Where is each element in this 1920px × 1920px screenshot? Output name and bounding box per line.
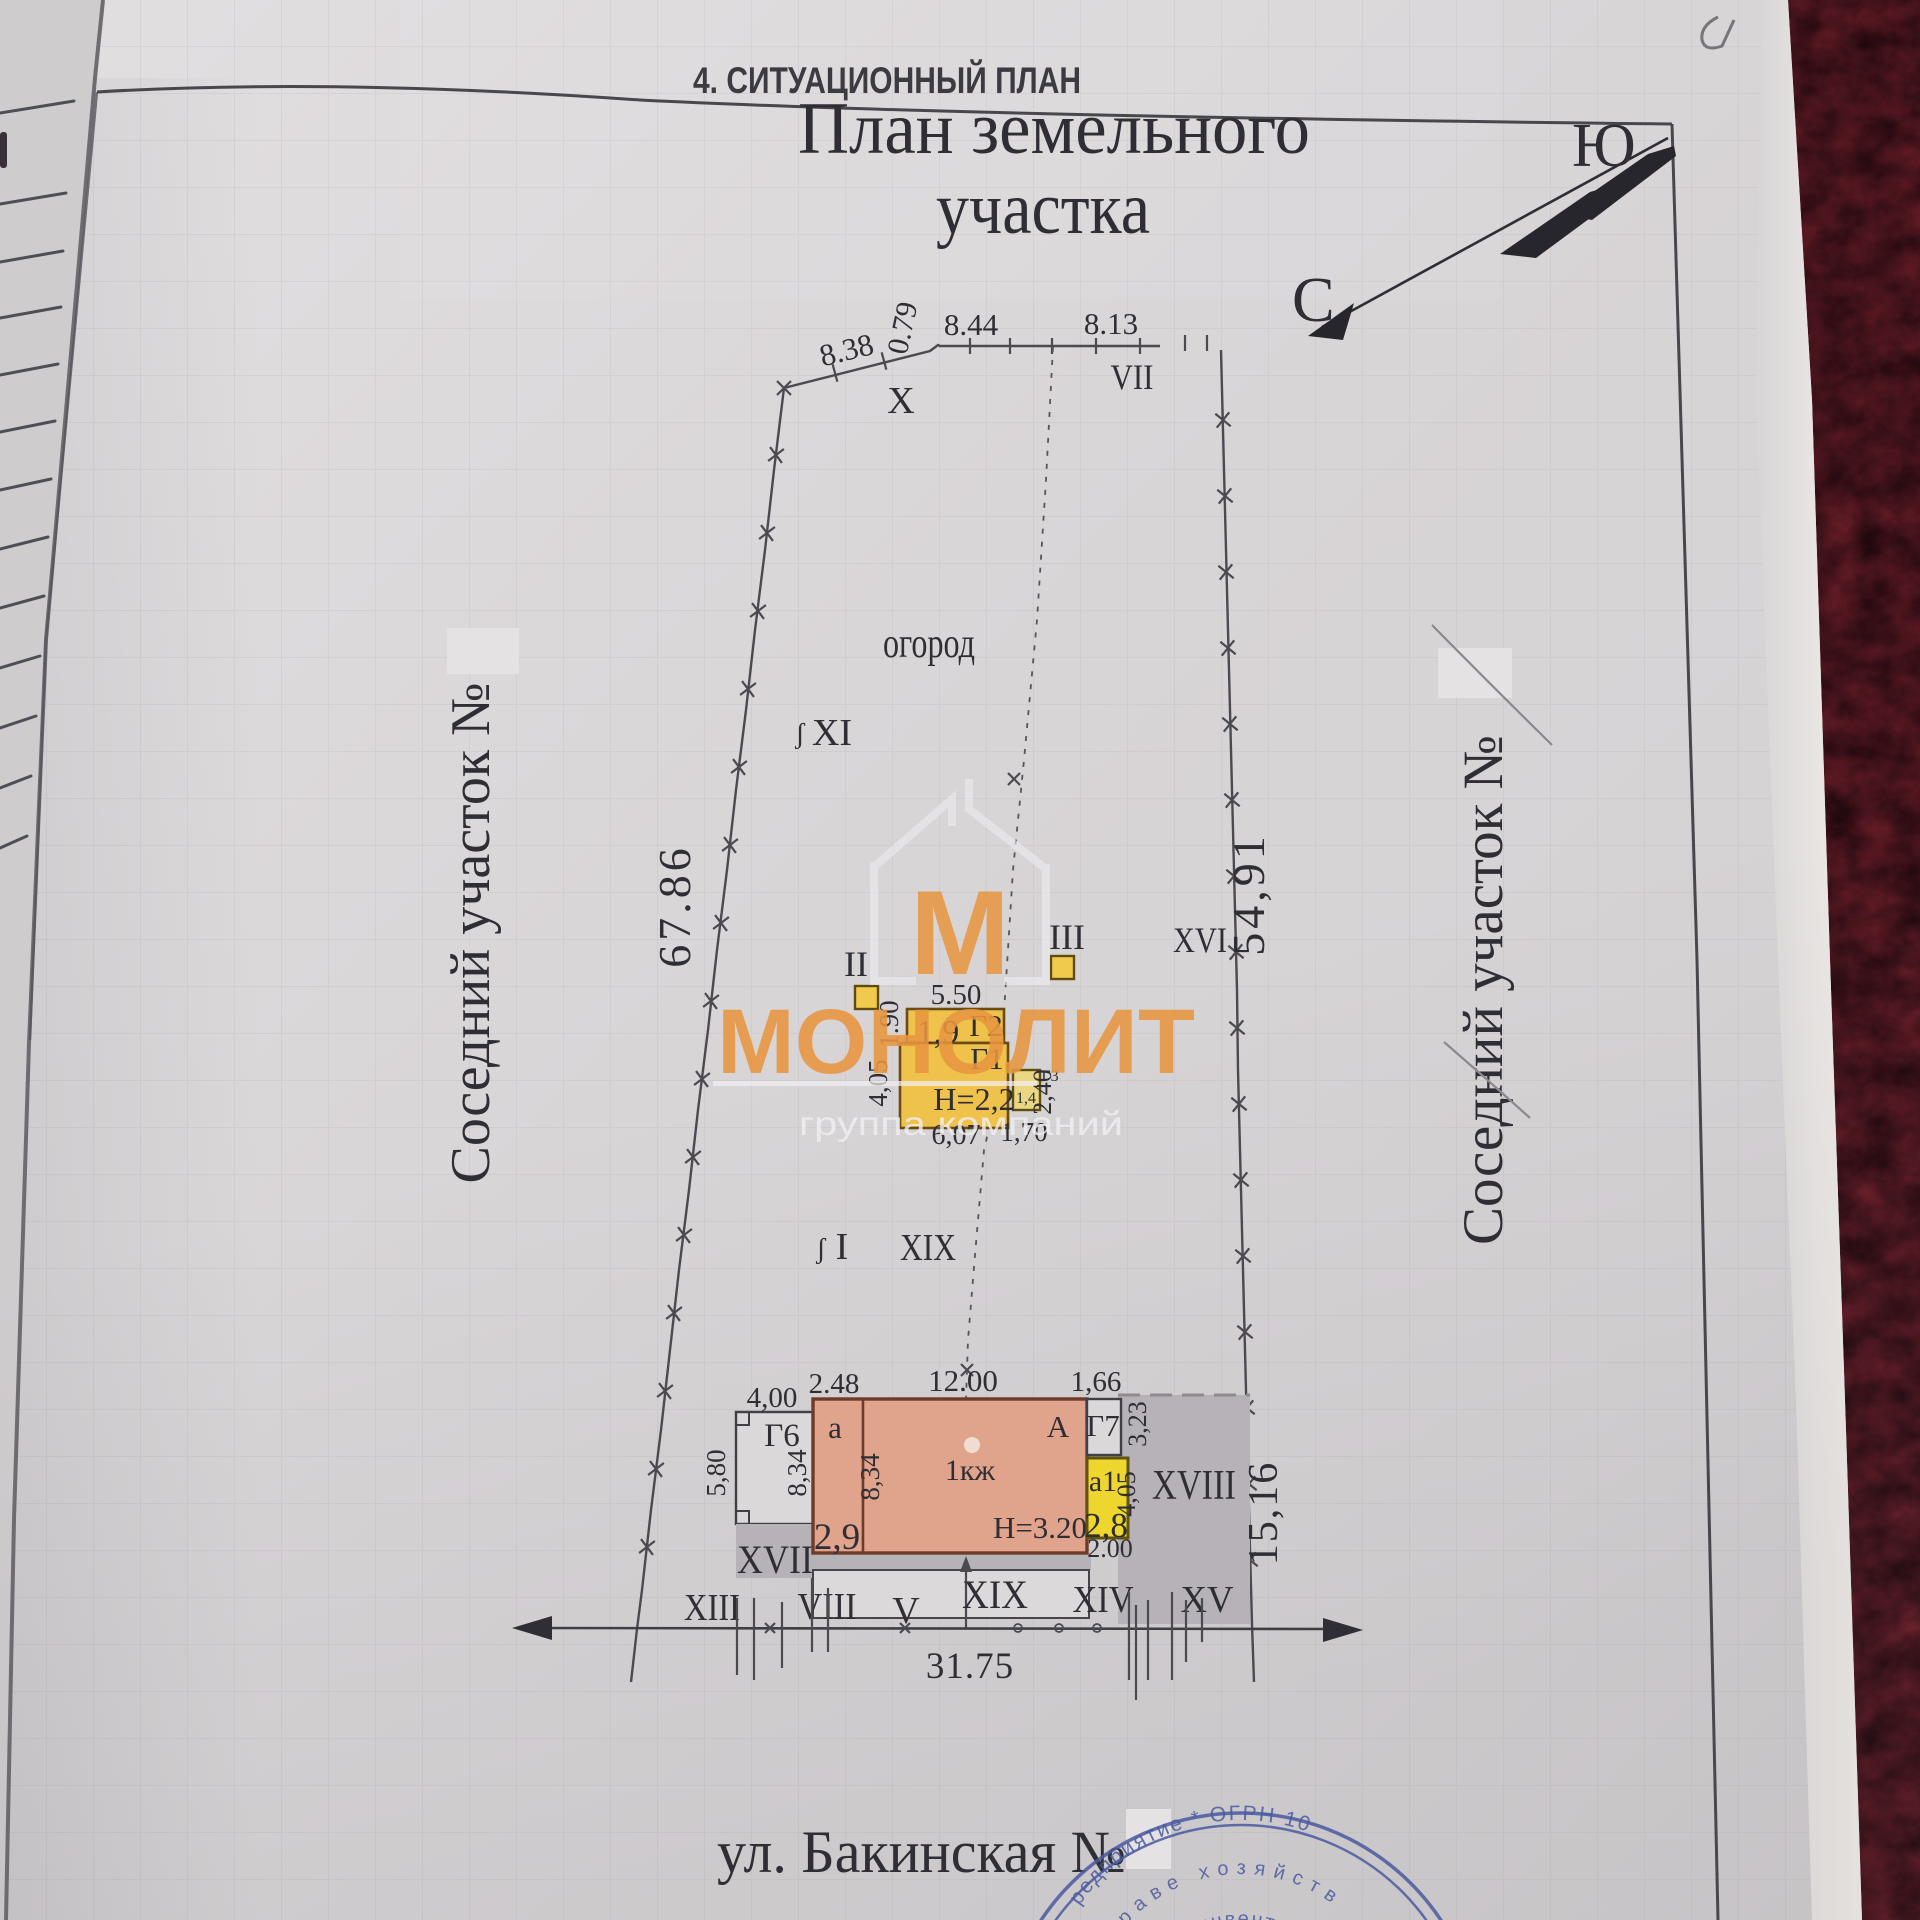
svg-text:1кж: 1кж	[945, 1454, 996, 1487]
svg-text:А: А	[1047, 1409, 1070, 1444]
svg-text:XIV: XIV	[1073, 1579, 1134, 1621]
svg-text:XIII: XIII	[684, 1587, 740, 1629]
svg-text:8,34: 8,34	[782, 1449, 812, 1497]
svg-text:План земельного: План земельного	[798, 88, 1310, 170]
svg-text:XIX: XIX	[962, 1572, 1028, 1617]
svg-text:15,16: 15,16	[1241, 1461, 1287, 1566]
svg-text:группа компаний: группа компаний	[799, 1105, 1123, 1142]
svg-text:а: а	[828, 1410, 842, 1445]
svg-text:огород: огород	[883, 621, 975, 667]
svg-text:8,34: 8,34	[855, 1453, 885, 1501]
svg-text:54,91: 54,91	[1223, 832, 1274, 956]
svg-text:С: С	[1292, 264, 1335, 335]
svg-text:МОНОЛИТ: МОНОЛИТ	[717, 991, 1195, 1093]
svg-text:Соседний участок №: Соседний участок №	[440, 682, 502, 1183]
svg-text:Г7: Г7	[1086, 1408, 1119, 1443]
svg-text:XVIII: XVIII	[1152, 1463, 1236, 1509]
svg-text:ʃ: ʃ	[794, 719, 805, 750]
svg-text:XVI: XVI	[1173, 920, 1227, 960]
svg-text:М: М	[910, 866, 1010, 1000]
svg-text:67.86: 67.86	[649, 844, 700, 968]
svg-text:2.00: 2.00	[1087, 1534, 1133, 1563]
svg-text:XVII: XVII	[737, 1537, 813, 1582]
svg-text:5,80: 5,80	[701, 1449, 731, 1496]
svg-text:1,66: 1,66	[1071, 1366, 1122, 1398]
svg-text:2.48: 2.48	[809, 1368, 860, 1400]
svg-text:4,05: 4,05	[1112, 1471, 1141, 1517]
svg-text:ул. Бакинская №: ул. Бакинская №	[717, 1819, 1126, 1885]
svg-text:III: III	[1049, 917, 1085, 957]
svg-text:2,9: 2,9	[814, 1517, 860, 1558]
svg-text:12.00: 12.00	[928, 1363, 998, 1398]
svg-text:Г6: Г6	[764, 1418, 800, 1454]
svg-text:ʃ: ʃ	[815, 1234, 826, 1265]
svg-text:XIX: XIX	[900, 1227, 956, 1269]
svg-text:I: I	[836, 1226, 849, 1268]
svg-text:31.75: 31.75	[926, 1646, 1014, 1687]
svg-text:II: II	[844, 944, 868, 984]
svg-text:3,23: 3,23	[1123, 1401, 1152, 1447]
svg-text:VII: VII	[1111, 357, 1154, 397]
svg-text:8.13: 8.13	[1084, 306, 1138, 341]
svg-text:4,00: 4,00	[747, 1382, 798, 1414]
svg-text:Н=3.20: Н=3.20	[993, 1510, 1087, 1545]
svg-text:XI: XI	[812, 712, 852, 754]
svg-text:Соседний участок №: Соседний участок №	[1452, 735, 1515, 1245]
svg-text:X: X	[887, 380, 914, 422]
svg-text:участка: участка	[936, 168, 1150, 250]
svg-text:8.44: 8.44	[944, 307, 999, 342]
svg-text:XV: XV	[1181, 1579, 1235, 1621]
